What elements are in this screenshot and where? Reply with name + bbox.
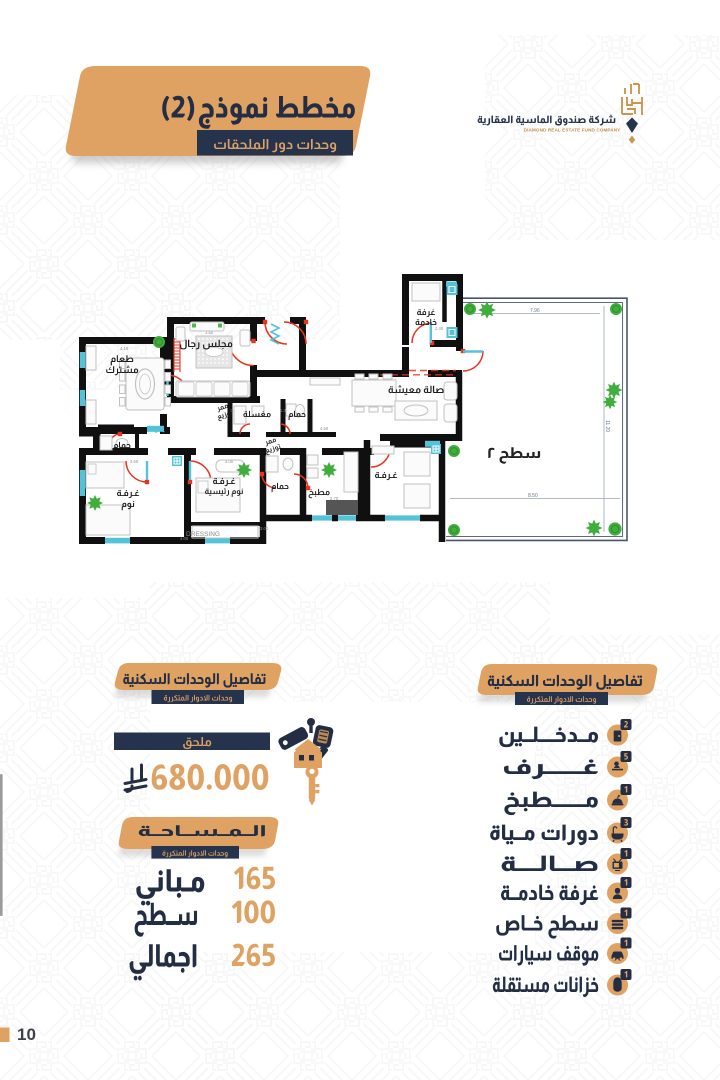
svg-text:8.50: 8.50 — [528, 493, 538, 499]
svg-text:3.50: 3.50 — [130, 459, 139, 464]
svg-text:11.20: 11.20 — [604, 420, 610, 432]
svg-text:10: 10 — [17, 1025, 36, 1044]
svg-text:7.96: 7.96 — [530, 308, 540, 314]
svg-text:4.50: 4.50 — [320, 426, 329, 431]
svg-text:2.40: 2.40 — [435, 326, 444, 331]
svg-text:DRESSING: DRESSING — [186, 531, 220, 538]
svg-text:DIAMOND REAL ESTATE FUND COMPA: DIAMOND REAL ESTATE FUND COMPANY — [524, 128, 621, 133]
svg-text:3.00: 3.00 — [260, 526, 269, 531]
svg-text:4.10: 4.10 — [120, 346, 129, 351]
